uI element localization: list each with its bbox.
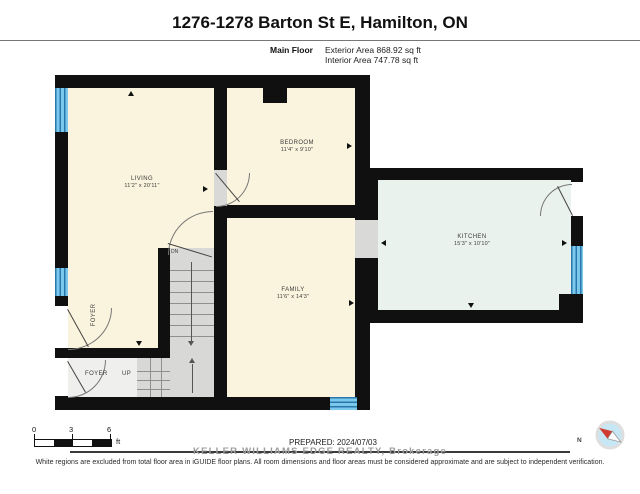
bedroom-label: BEDROOM 11'4" x 9'10" (247, 140, 347, 154)
disclaimer-text: White regions are excluded from total fl… (0, 459, 640, 466)
opening-arrow-icon (349, 300, 354, 306)
living-room-label: LIVING 11'2" x 20'11" (92, 176, 192, 190)
wall (355, 75, 370, 168)
dn-label: DN (171, 249, 178, 255)
stair-direction-line (192, 364, 193, 393)
stair-tread (170, 303, 214, 304)
wall (214, 88, 227, 170)
wall (559, 294, 583, 323)
scale-start-label: 0 (32, 425, 36, 434)
stairs-down-arrow-icon (188, 341, 194, 346)
kitchen-label: KITCHEN 15'3" x 10'10" (422, 234, 522, 248)
family-room-area (227, 218, 355, 397)
foyer-entry-label: FOYER (85, 371, 108, 377)
scale-unit-label: ft (116, 437, 120, 446)
page-title: 1276-1278 Barton St E, Hamilton, ON (0, 13, 640, 33)
stairs-winder-left (137, 358, 170, 397)
stair-tread (170, 314, 214, 315)
opening-arrow-icon (347, 143, 352, 149)
stairs-flight-area (170, 260, 214, 348)
opening-arrow-icon (381, 240, 386, 246)
window (571, 246, 583, 294)
stair-tread (150, 358, 151, 397)
wall (355, 258, 378, 310)
opening-arrow-icon (136, 341, 142, 346)
wall (355, 323, 370, 410)
wall (571, 168, 583, 182)
floor-plan-page: 1276-1278 Barton St E, Hamilton, ON Main… (0, 0, 640, 494)
stair-tread (137, 380, 170, 381)
family-room-label: FAMILY 11'6" x 14'3" (243, 287, 343, 301)
up-label: UP (122, 371, 131, 377)
window (55, 88, 68, 132)
opening-arrow-icon (216, 303, 221, 309)
stair-tread (161, 358, 162, 397)
scale-bar: 0 3 6 ft (34, 428, 134, 448)
window (330, 397, 357, 410)
wall (158, 248, 170, 358)
opening-arrow-icon (468, 303, 474, 308)
foyer-side-label: FOYER (91, 294, 97, 336)
wall (227, 205, 355, 218)
stair-tread (170, 325, 214, 326)
opening-arrow-icon (470, 175, 476, 180)
door-opening (355, 220, 378, 258)
wall (571, 216, 583, 246)
wall (355, 180, 378, 220)
stair-tread (137, 371, 170, 372)
compass-icon (592, 418, 628, 454)
opening-arrow-icon (562, 240, 567, 246)
stair-direction-line (191, 262, 192, 342)
stair-tread (170, 270, 214, 271)
stair-tread (137, 389, 170, 390)
header-divider (0, 40, 640, 41)
scale-end-label: 6 (107, 425, 111, 434)
stairs-up-arrow-icon (189, 358, 195, 363)
exterior-area-label: Exterior Area 868.92 sq ft (325, 45, 485, 55)
wall (55, 75, 369, 88)
stair-tread (170, 281, 214, 282)
compass-north-label: N (577, 437, 582, 444)
wall (355, 310, 583, 323)
scale-mid-label: 3 (69, 425, 73, 434)
brokerage-watermark: KELLER WILLIAMS EDGE REALTY, Brokerage (0, 446, 640, 457)
interior-area-label: Interior Area 747.78 sq ft (325, 55, 485, 65)
floor-label: Main Floor (238, 45, 313, 55)
opening-arrow-icon (203, 186, 208, 192)
wall (355, 168, 583, 180)
chimney-notch (263, 88, 287, 103)
opening-arrow-icon (128, 91, 134, 96)
wall (55, 397, 369, 410)
stair-tread (170, 336, 214, 337)
wall (214, 206, 227, 397)
stair-tread (170, 292, 214, 293)
window (55, 268, 68, 296)
